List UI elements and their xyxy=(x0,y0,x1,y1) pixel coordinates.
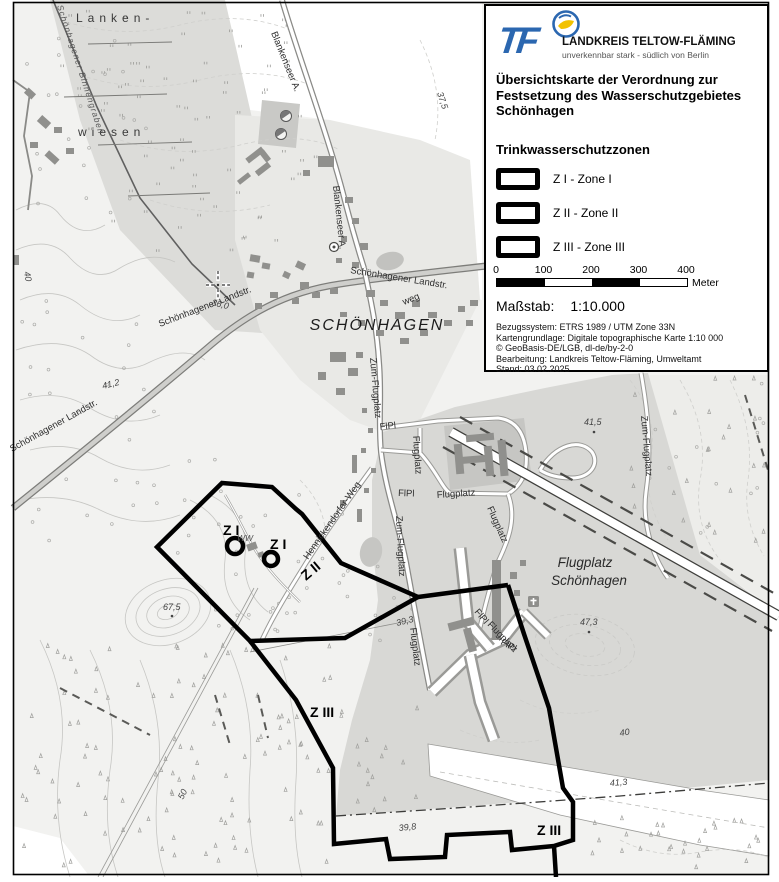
building xyxy=(444,320,452,326)
scalebar-tick: 300 xyxy=(630,264,648,276)
scale-value: 1:10.000 xyxy=(570,298,625,314)
building xyxy=(458,306,465,312)
map-label: Flugplatz xyxy=(558,555,613,570)
building xyxy=(371,468,376,473)
zone-swatch xyxy=(496,168,540,190)
zone-label: Z III - Zone III xyxy=(553,240,625,254)
map-document: Lanken-wiesenSchönhagener BinnengrabenBl… xyxy=(0,0,779,877)
zones-heading: Trinkwasserschutzzonen xyxy=(496,142,650,157)
scale-label: Maßstab: xyxy=(496,298,554,314)
metadata-line: Stand: 03.02.2025 xyxy=(496,364,723,375)
building xyxy=(362,408,367,413)
map-label: Z III xyxy=(537,822,561,838)
map-metadata: Bezugssystem: ETRS 1989 / UTM Zone 33NKa… xyxy=(496,322,723,375)
cross-icon xyxy=(528,596,539,607)
scalebar-ticks: 0100200300400 xyxy=(496,264,756,277)
building xyxy=(54,127,62,133)
map-title-line3: Schönhagen xyxy=(496,103,741,119)
map-label: 40 xyxy=(22,271,34,283)
tf-logo: TF xyxy=(495,20,537,62)
building xyxy=(360,243,368,250)
building xyxy=(368,428,373,433)
building xyxy=(247,271,255,278)
scalebar-segment xyxy=(545,279,593,286)
map-label: 39,8 xyxy=(398,821,416,833)
scalebar-tick: 200 xyxy=(582,264,600,276)
scalebar-tick: 0 xyxy=(493,264,499,276)
building xyxy=(520,560,526,566)
building xyxy=(364,488,369,493)
scalebar-segment xyxy=(640,279,688,286)
legend-panel: TF LANDKREIS TELTOW-FLÄMING unverkennbar… xyxy=(484,4,769,372)
building xyxy=(470,300,478,306)
building xyxy=(318,156,334,167)
building xyxy=(356,352,363,358)
building xyxy=(400,338,409,344)
scalebar: 0100200300400 Meter xyxy=(496,264,756,300)
scale-statement: Maßstab:1:10.000 xyxy=(496,298,625,314)
scalebar-tick: 100 xyxy=(535,264,553,276)
chapel-dot xyxy=(333,246,336,249)
map-label: WW xyxy=(237,533,254,543)
scalebar-segment xyxy=(592,279,640,286)
map-title: Übersichtskarte der Verordnung zur Fests… xyxy=(496,72,741,119)
logo-tagline: unverkennbar stark - südlich von Berlin xyxy=(562,50,709,60)
building xyxy=(361,448,366,453)
metadata-line: Bezugssystem: ETRS 1989 / UTM Zone 33N xyxy=(496,322,723,333)
building xyxy=(352,455,357,473)
map-label: FlPl xyxy=(398,488,415,500)
zone-legend-row: Z III - Zone III xyxy=(496,230,625,264)
building xyxy=(30,142,38,148)
metadata-line: Bearbeitung: Landkreis Teltow-Fläming, U… xyxy=(496,354,723,365)
map-label: Lanken- xyxy=(76,11,154,25)
building xyxy=(318,372,326,380)
elevation-dot xyxy=(171,615,174,618)
scalebar-unit: Meter xyxy=(692,277,719,289)
map-label: Z III xyxy=(310,704,334,720)
scalebar-bar xyxy=(496,278,688,287)
building xyxy=(330,352,346,362)
building xyxy=(303,170,310,176)
zone-legend-row: Z I - Zone I xyxy=(496,162,625,196)
map-label: FlPl xyxy=(379,420,396,433)
scalebar-segment xyxy=(497,279,545,286)
building xyxy=(292,298,299,304)
map-label: 47,3 xyxy=(580,617,598,627)
building xyxy=(270,292,278,298)
elevation-dot xyxy=(593,431,596,434)
building xyxy=(357,509,362,522)
building xyxy=(336,388,345,395)
metadata-line: Kartengrundlage: Digitale topographische… xyxy=(496,333,723,344)
map-label: 67,5 xyxy=(163,602,182,612)
zone-label: Z I - Zone I xyxy=(553,172,612,186)
building xyxy=(312,292,320,298)
zone-legend-row: Z II - Zone II xyxy=(496,196,625,230)
building xyxy=(366,290,375,297)
building xyxy=(466,320,473,326)
metadata-line: © GeoBasis-DE/LGB, dl-de/by-2-0 xyxy=(496,343,723,354)
zone-swatch xyxy=(496,202,540,224)
building xyxy=(66,148,74,154)
building xyxy=(336,258,342,263)
building xyxy=(352,218,359,224)
map-label: Z I xyxy=(270,536,286,552)
map-label: wiesen xyxy=(77,125,145,139)
map-label: SCHÖNHAGEN xyxy=(310,316,445,334)
logo: TF LANDKREIS TELTOW-FLÄMING unverkennbar… xyxy=(494,10,759,72)
zone-legend-list: Z I - Zone IZ II - Zone IIZ III - Zone I… xyxy=(496,162,625,264)
zone-swatch xyxy=(496,236,540,258)
map-label: Z I xyxy=(223,522,239,538)
building xyxy=(380,300,388,306)
map-label: 41,3 xyxy=(609,777,627,788)
map-label: Schönhagen xyxy=(551,573,627,588)
building xyxy=(514,590,520,596)
elevation-dot xyxy=(588,631,591,634)
map-label: 41,5 xyxy=(584,417,603,427)
building xyxy=(255,303,262,309)
map-title-line1: Übersichtskarte der Verordnung zur xyxy=(496,72,741,88)
logo-name: LANDKREIS TELTOW-FLÄMING xyxy=(562,36,736,48)
building xyxy=(345,197,353,203)
map-title-line2: Festsetzung des Wasserschutzgebietes xyxy=(496,88,741,104)
tank-compound xyxy=(258,100,300,148)
building xyxy=(330,288,338,294)
map-label: 40 xyxy=(619,727,630,738)
scalebar-tick: 400 xyxy=(677,264,695,276)
building xyxy=(510,572,517,579)
building xyxy=(348,368,358,376)
zone-label: Z II - Zone II xyxy=(553,206,618,220)
building xyxy=(300,282,309,289)
